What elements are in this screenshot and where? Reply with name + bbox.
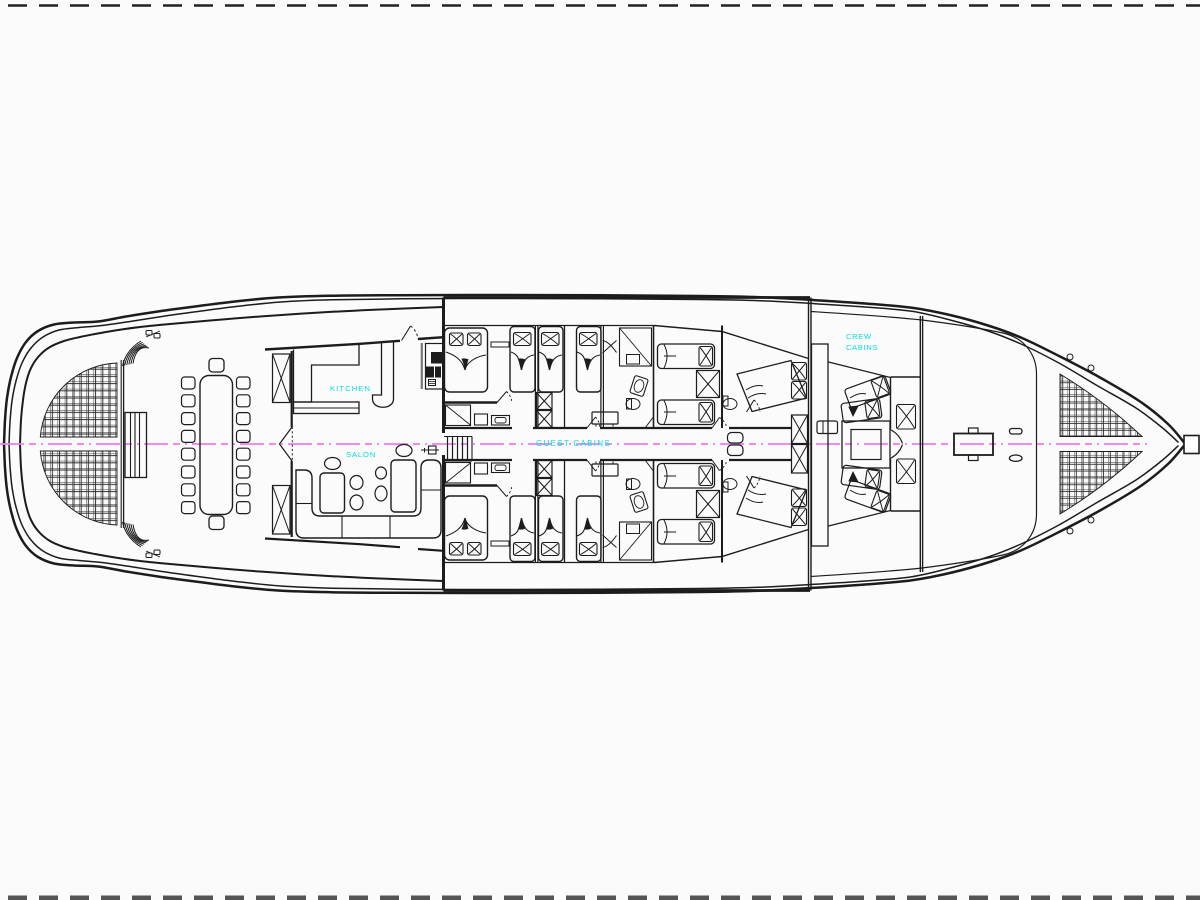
svg-text:KITCHEN: KITCHEN (330, 384, 371, 393)
svg-text:SALON: SALON (346, 450, 376, 459)
svg-text:GUEST CABINS: GUEST CABINS (536, 439, 611, 448)
svg-text:CREW: CREW (846, 332, 872, 341)
svg-text:CABINS: CABINS (846, 343, 878, 352)
